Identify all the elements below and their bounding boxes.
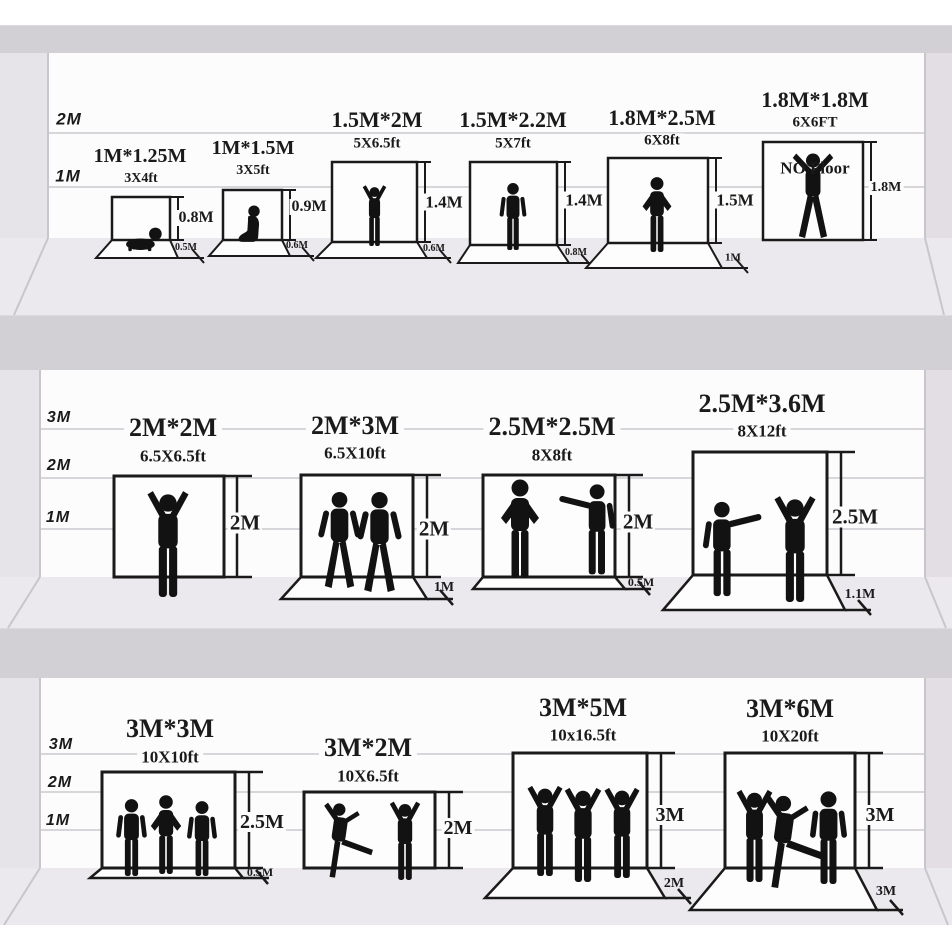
shelf-divider-mid2 xyxy=(0,628,952,680)
axis-label-2m: 2M xyxy=(56,111,82,128)
panel-title: 2M*2M xyxy=(124,414,222,442)
floor-depth-label: 0.6M xyxy=(286,241,308,251)
height-dimension-label: 2M xyxy=(442,818,475,838)
height-dimension-label: 1.4M xyxy=(563,192,604,209)
height-dimension-label: 2M xyxy=(621,512,655,533)
side-wall-left xyxy=(0,53,48,238)
axis-label-1m: 1M xyxy=(46,510,70,526)
meter-gridline xyxy=(48,186,925,188)
panel-title: 1.5M*2M xyxy=(326,108,427,132)
panel-subtitle: 6X6FT xyxy=(789,116,842,131)
panel-subtitle: 6X8ft xyxy=(640,134,684,149)
panel-subtitle: 10X10ft xyxy=(137,749,203,766)
shelf-divider-top xyxy=(0,25,952,55)
shelf-divider-mid1 xyxy=(0,315,952,372)
panel-title: 2M*3M xyxy=(306,412,404,440)
floor-row2 xyxy=(0,577,952,628)
panel-title: 2.5M*2.5M xyxy=(483,413,620,441)
panel-title: 1M*1.5M xyxy=(207,137,300,159)
axis-label-2m: 2M xyxy=(48,775,72,791)
floor-depth-label: 0.5M xyxy=(175,243,197,253)
floor-depth-label: 1.1M xyxy=(845,588,876,602)
height-dimension-label: 2M xyxy=(417,519,451,540)
height-dimension-label: 0.9M xyxy=(289,199,328,215)
height-dimension-label: 2.5M xyxy=(238,812,286,832)
floor-depth-label: 2M xyxy=(664,877,684,891)
axis-label-1m: 1M xyxy=(46,813,70,829)
axis-label-3m: 3M xyxy=(47,410,71,426)
panel-subtitle: 10x16.5ft xyxy=(546,727,621,744)
panel-title: 2.5M*3.6M xyxy=(693,390,830,418)
height-dimension-label: 0.8M xyxy=(176,210,215,226)
floor-depth-label: 1M xyxy=(434,581,454,595)
panel-title: 1M*1.25M xyxy=(89,145,192,167)
floor-row3 xyxy=(0,868,952,925)
axis-label-3m: 3M xyxy=(49,737,73,753)
side-wall-right xyxy=(925,53,952,238)
panel-title: 3M*6M xyxy=(741,695,839,723)
panel-title: 1.8M*2.5M xyxy=(603,106,721,130)
panel-title: 3M*2M xyxy=(319,734,417,762)
height-dimension-label: 1.4M xyxy=(423,194,464,211)
panel-title: 3M*5M xyxy=(534,694,632,722)
meter-gridline xyxy=(40,829,925,831)
meter-gridline xyxy=(40,791,925,793)
panel-subtitle: 3X5ft xyxy=(232,164,273,178)
panel-title: 3M*3M xyxy=(121,715,219,743)
panel-subtitle: 6.5X10ft xyxy=(320,445,390,462)
height-dimension-label: 2.5M xyxy=(830,507,880,528)
height-dimension-label: 3M xyxy=(864,805,897,825)
panel-title: 1.8M*1.8M xyxy=(756,88,874,112)
floor-depth-label: 0.6M xyxy=(423,244,445,254)
panel-subtitle: 5X6.5ft xyxy=(349,137,404,152)
panel-subtitle: 10X6.5ft xyxy=(333,768,403,785)
floor-depth-label: 1M xyxy=(725,253,741,264)
side-wall-right xyxy=(925,678,952,868)
height-dimension-label: 1.8M xyxy=(869,181,904,195)
meter-gridline xyxy=(40,477,925,479)
floor-depth-label: 0.5M xyxy=(247,866,273,878)
panel-title: 1.5M*2.2M xyxy=(454,108,572,132)
panel-subtitle: 5X7ft xyxy=(491,137,535,152)
meter-gridline xyxy=(48,132,925,134)
floor-depth-label: 3M xyxy=(876,885,896,899)
floor-row1 xyxy=(0,238,952,315)
floor-depth-label: 0.5M xyxy=(628,576,654,588)
panel-subtitle: 10X20ft xyxy=(757,728,823,745)
axis-label-1m: 1M xyxy=(55,168,81,185)
height-dimension-label: 2M xyxy=(228,513,262,534)
no-floor-note: NO Floor xyxy=(780,160,849,177)
backdrop-size-chart: 2M 1M 3M 2M 1M 3M 2M 1M 1M*1.25M 3X4ft 0… xyxy=(0,0,952,952)
meter-gridline xyxy=(40,528,925,530)
axis-label-2m: 2M xyxy=(47,458,71,474)
side-wall-left xyxy=(0,370,40,577)
height-dimension-label: 1.5M xyxy=(714,192,755,209)
panel-subtitle: 8X12ft xyxy=(733,423,790,440)
side-wall-right xyxy=(925,370,952,577)
panel-subtitle: 6.5X6.5ft xyxy=(136,448,210,465)
side-wall-left xyxy=(0,678,40,868)
height-dimension-label: 3M xyxy=(654,805,687,825)
panel-subtitle: 8X8ft xyxy=(528,447,577,464)
panel-subtitle: 3X4ft xyxy=(120,172,161,186)
floor-depth-label: 0.8M xyxy=(565,248,587,258)
